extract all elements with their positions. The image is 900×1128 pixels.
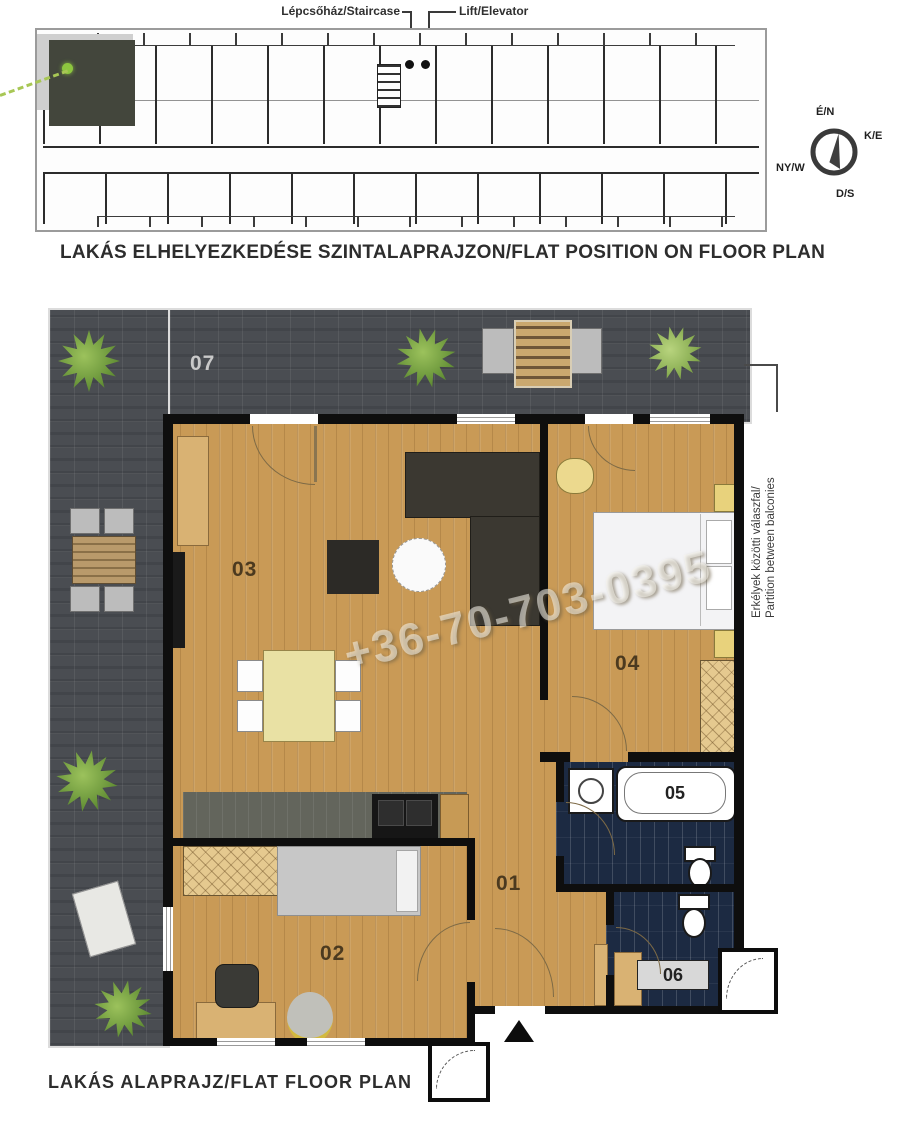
kitchen-cupboard (177, 436, 209, 546)
door-leaf (314, 426, 317, 482)
staircase-icon (377, 64, 401, 108)
compass-east-label: K/E (864, 130, 882, 142)
window (163, 905, 173, 973)
terrace-chair (104, 508, 134, 534)
terrace-table (514, 320, 572, 388)
wall (171, 838, 475, 846)
balcony-strip (97, 216, 735, 227)
overview-caption: LAKÁS ELHELYEZKEDÉSE SZINTALAPRAJZON/FLA… (60, 242, 825, 264)
building-floor-plan (35, 28, 767, 232)
dining-table (263, 650, 335, 742)
armchair (556, 458, 594, 494)
balcony-strip (97, 33, 735, 46)
terrace-chair (104, 586, 134, 612)
wardrobe (700, 660, 738, 758)
dining-chair (335, 700, 361, 732)
compass-north-label: É/N (816, 106, 834, 118)
compass-west-label: NY/W (776, 162, 805, 174)
desk-chair (215, 964, 259, 1008)
corridor (43, 146, 759, 174)
pillow (396, 850, 418, 912)
terrace-chair (570, 328, 602, 374)
terrace-dining-table (72, 536, 136, 584)
elevator-icon (405, 60, 414, 69)
coffee-table (327, 540, 379, 594)
wall (540, 414, 548, 700)
elevator-label: Lift/Elevator (459, 4, 528, 18)
entrance-arrow-icon (504, 1020, 534, 1042)
wall (467, 1006, 495, 1014)
balcony-door-gap (585, 414, 633, 424)
wall (467, 846, 475, 920)
room-label-bedroom2: 02 (320, 942, 345, 966)
round-rug (392, 538, 446, 592)
compass-icon (804, 122, 864, 182)
staircase-label: Lépcsőház/Staircase (250, 4, 400, 18)
pouf (287, 992, 333, 1044)
wall (734, 414, 744, 1014)
terrace-chair (482, 328, 514, 374)
oven-icon (406, 800, 432, 826)
wall (540, 752, 570, 762)
partition-note-line1: Erkélyek közötti válaszfal/ (750, 477, 764, 618)
elevator-icon (421, 60, 430, 69)
side-door-leaf (718, 948, 778, 1014)
terrace-chair (70, 508, 100, 534)
window (648, 414, 712, 424)
floor-plan-sheet: Lépcsőház/Staircase Lift/Elevator É/N K/… (0, 0, 900, 1128)
wall (556, 884, 744, 892)
partition-note-line2: Partition between balconies (764, 477, 778, 618)
kitchen-cabinet (440, 794, 469, 844)
wall (606, 892, 614, 925)
terrace-chair (70, 586, 100, 612)
pillow (706, 520, 732, 564)
entrance-door-leaf (428, 1042, 490, 1102)
room-label-hall: 01 (496, 872, 521, 896)
room-label-bathroom: 05 (624, 772, 726, 814)
wall (545, 1006, 744, 1014)
window (455, 414, 517, 424)
partition-leader-line (744, 364, 778, 366)
stove-icon (378, 800, 404, 826)
elevator-leader-line (428, 11, 456, 13)
partition-leader-line (776, 364, 778, 412)
wardrobe (183, 846, 279, 896)
window (305, 1038, 367, 1046)
door-swing-arc (436, 1050, 475, 1089)
room-label-living: 03 (232, 558, 257, 582)
window (215, 1038, 277, 1046)
dining-chair (237, 660, 263, 692)
flat-caption: LAKÁS ALAPRAJZ/FLAT FLOOR PLAN (48, 1072, 412, 1093)
wall (556, 762, 564, 802)
tv-board (173, 552, 185, 648)
compass-south-label: D/S (836, 188, 854, 200)
wall (628, 752, 744, 762)
door-swing-arc (726, 958, 763, 999)
partition-note: Erkélyek közötti válaszfal/ Partition be… (750, 477, 778, 618)
washbasin-bowl (578, 778, 604, 804)
dining-chair (237, 700, 263, 732)
entrance-door-gap (495, 1006, 545, 1014)
highlighted-flat (49, 40, 135, 126)
balcony-door-gap (250, 414, 318, 424)
room-label-terrace: 07 (190, 352, 215, 376)
room-label-bedroom1: 04 (615, 652, 640, 676)
sofa (405, 452, 540, 518)
unit-walls (43, 46, 759, 144)
toilet-bowl (682, 908, 706, 938)
wall (467, 982, 475, 1046)
